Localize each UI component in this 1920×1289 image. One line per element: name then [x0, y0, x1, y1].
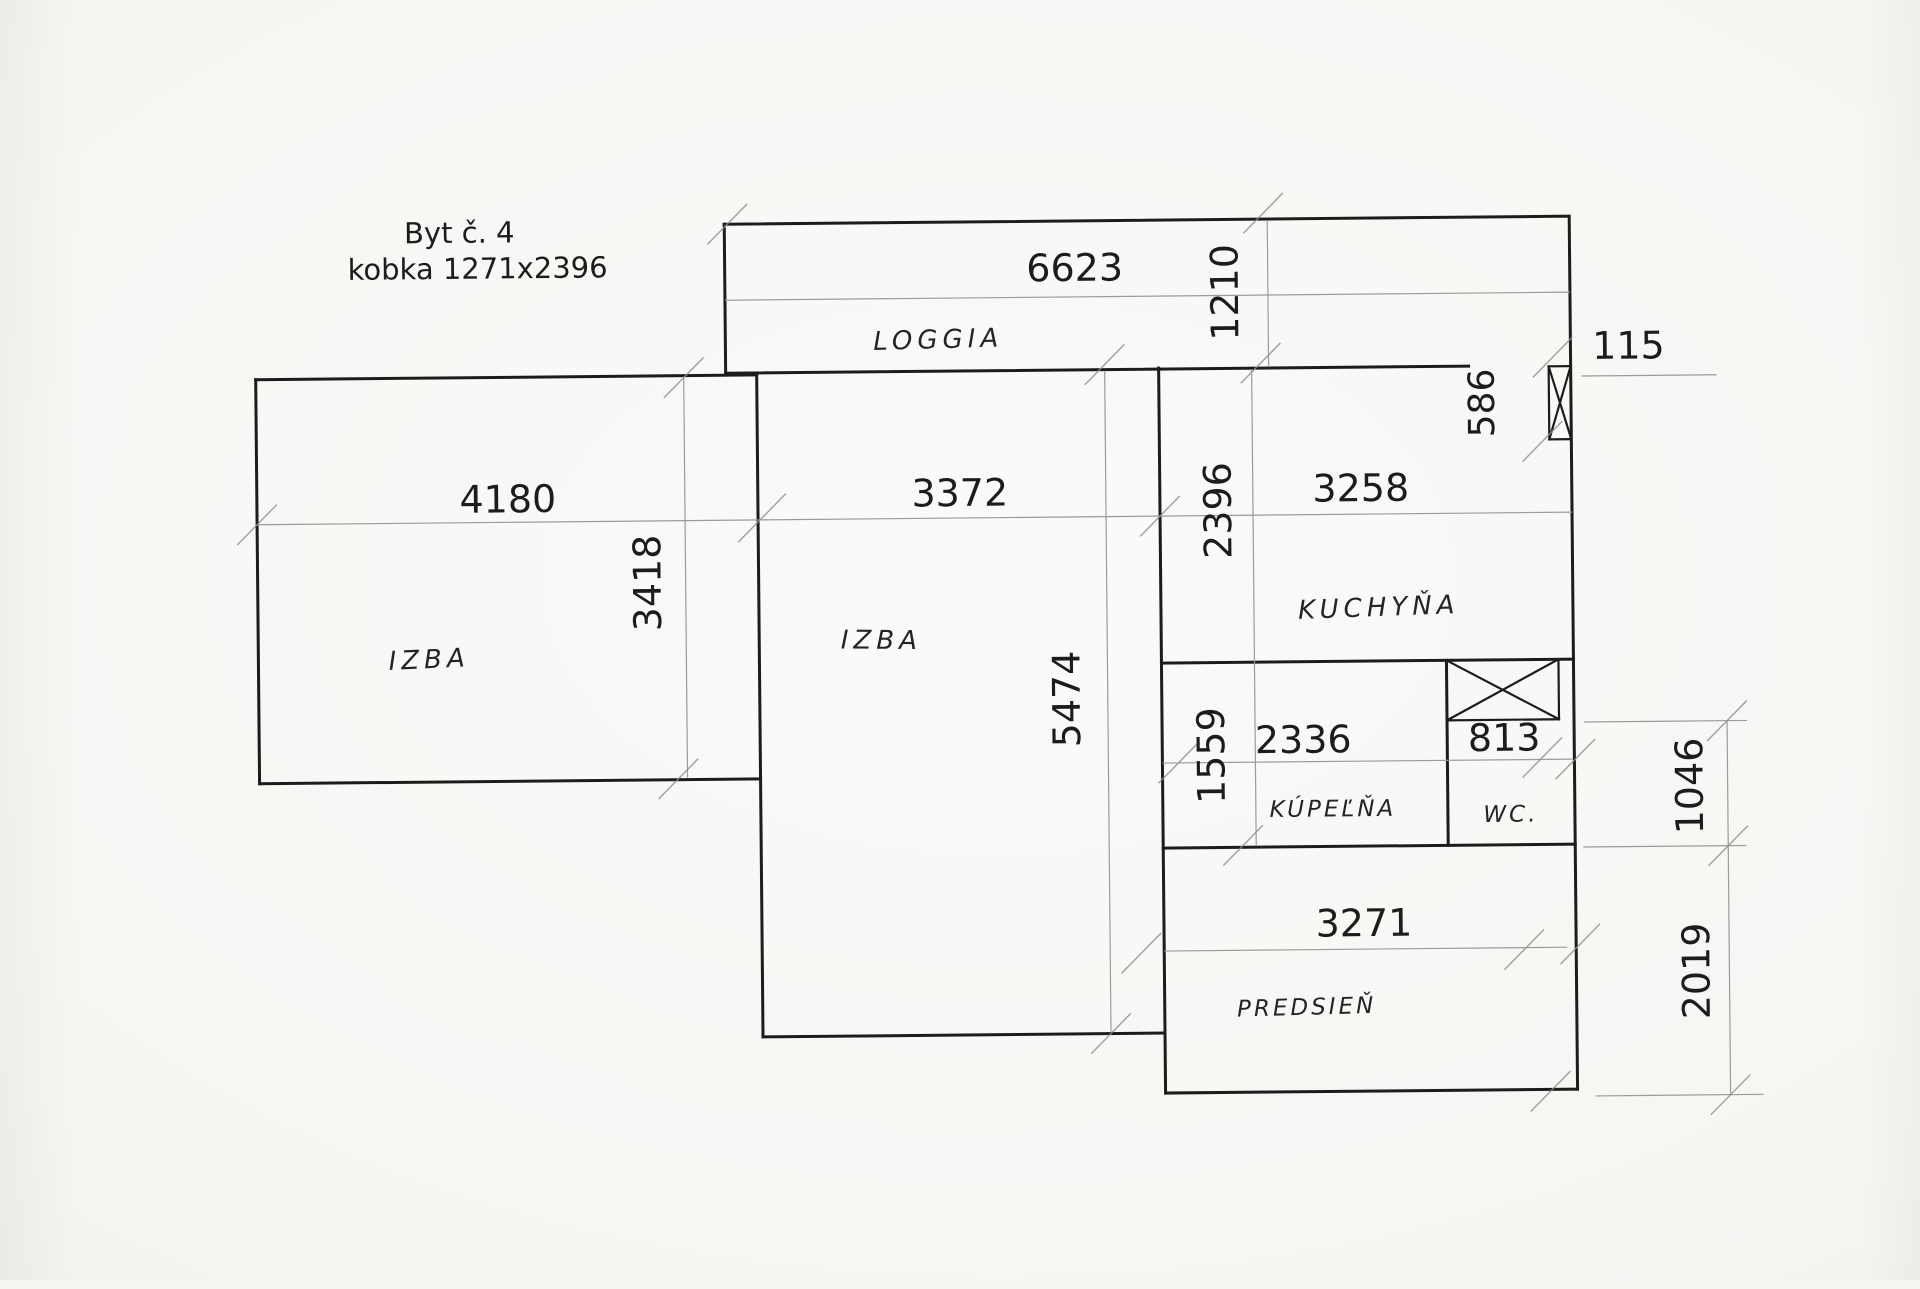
dim-loggia-depth: 1210 — [1202, 244, 1247, 341]
dimline-izba-left-depth — [684, 377, 688, 778]
title-block: Byt č. 4 kobka 1271x2396 — [347, 214, 608, 286]
dim-pier-width: 115 — [1592, 323, 1665, 368]
dimension-lines — [254, 216, 1763, 1108]
wall-izba-middle-bottom — [763, 1033, 1165, 1037]
dim-kuchyna-depth: 2396 — [1196, 462, 1241, 559]
dim-predsien-depth: 2019 — [1674, 922, 1719, 1019]
room-label-kupelna: KÚPEĽŇA — [1269, 794, 1396, 823]
dim-izba-left-width: 4180 — [459, 477, 556, 522]
wall-loggia-top-and-right — [724, 216, 1577, 1097]
dim-kupelna-depth: 1559 — [1189, 707, 1234, 804]
dim-pier-height: 586 — [1462, 368, 1504, 437]
title-line2: kobka 1271x2396 — [348, 250, 608, 286]
wall-predsien-bottom — [1166, 1089, 1578, 1093]
dim-izba-left-depth: 3418 — [625, 534, 670, 631]
dimline-right-middle — [1583, 845, 1746, 847]
dimension-labels: 6623 1210 115 586 4180 3418 3372 2396 32… — [457, 239, 1719, 1031]
wall-loggia-left — [724, 224, 725, 373]
title-line1: Byt č. 4 — [404, 215, 515, 250]
dimline-predsien-width — [1164, 947, 1567, 951]
dimline-right-vertical — [1727, 721, 1731, 1095]
dim-wc-width: 813 — [1468, 715, 1541, 760]
floor-plan-drawing: 6623 1210 115 586 4180 3418 3372 2396 32… — [0, 0, 1920, 1289]
wall-interior-long — [1159, 368, 1166, 1093]
room-label-wc: WC. — [1483, 801, 1538, 828]
wall-pier-crossed-box — [1549, 366, 1572, 439]
dim-izba-middle-width: 3372 — [911, 471, 1008, 516]
dimline-right-upper — [1584, 720, 1747, 722]
dimline-izba-middle-depth — [1105, 372, 1111, 1032]
dimline-kuchyna-kupelna-depth — [1252, 369, 1257, 845]
room-label-predsien: PREDSIEŇ — [1237, 991, 1377, 1023]
dimline-loggia-width — [725, 292, 1570, 300]
room-label-loggia: LOGGIA — [873, 323, 1004, 357]
dim-wc-shaft-to-wall: 1046 — [1667, 737, 1712, 834]
room-label-izba-left: IZBA — [388, 643, 470, 677]
room-label-kuchyna: KUCHYŇA — [1297, 588, 1459, 626]
dim-kuchyna-width: 3258 — [1312, 466, 1409, 511]
dimline-loggia-depth-extension — [1267, 221, 1268, 366]
wall-izba-left-bottom — [260, 779, 761, 784]
dim-loggia-width: 6623 — [1026, 245, 1123, 290]
dimline-pier — [1582, 375, 1717, 376]
wall-izba-middle-west — [757, 373, 763, 1037]
dimline-right-lower — [1596, 1094, 1764, 1096]
shaft-crossed-box — [1446, 659, 1559, 720]
dim-izba-middle-depth: 5474 — [1044, 650, 1089, 747]
wall-kupelna-bottom — [1163, 844, 1575, 848]
dim-predsien-width: 3271 — [1315, 901, 1412, 946]
room-label-izba-middle: IZBA — [841, 625, 922, 656]
scanned-floorplan-page: 6623 1210 115 586 4180 3418 3372 2396 32… — [0, 0, 1920, 1280]
dim-kupelna-width: 2336 — [1255, 717, 1352, 762]
wall-izba-left-west — [256, 380, 260, 784]
